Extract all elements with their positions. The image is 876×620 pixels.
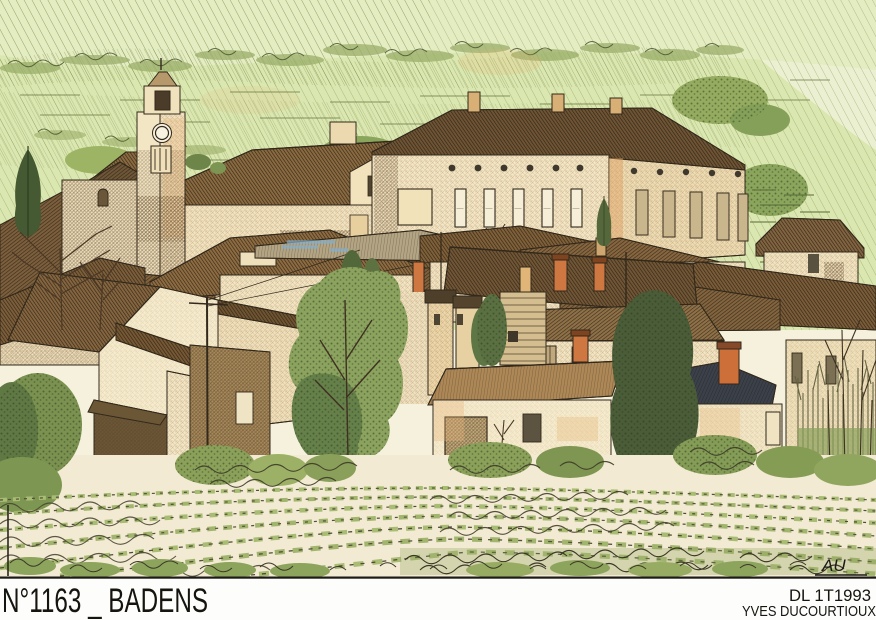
svg-text:YVES DUCOURTIOUX: YVES DUCOURTIOUX: [742, 603, 876, 620]
svg-text:AU: AU: [821, 556, 846, 575]
svg-text:N°1163 _ BADENS: N°1163 _ BADENS: [2, 582, 208, 620]
